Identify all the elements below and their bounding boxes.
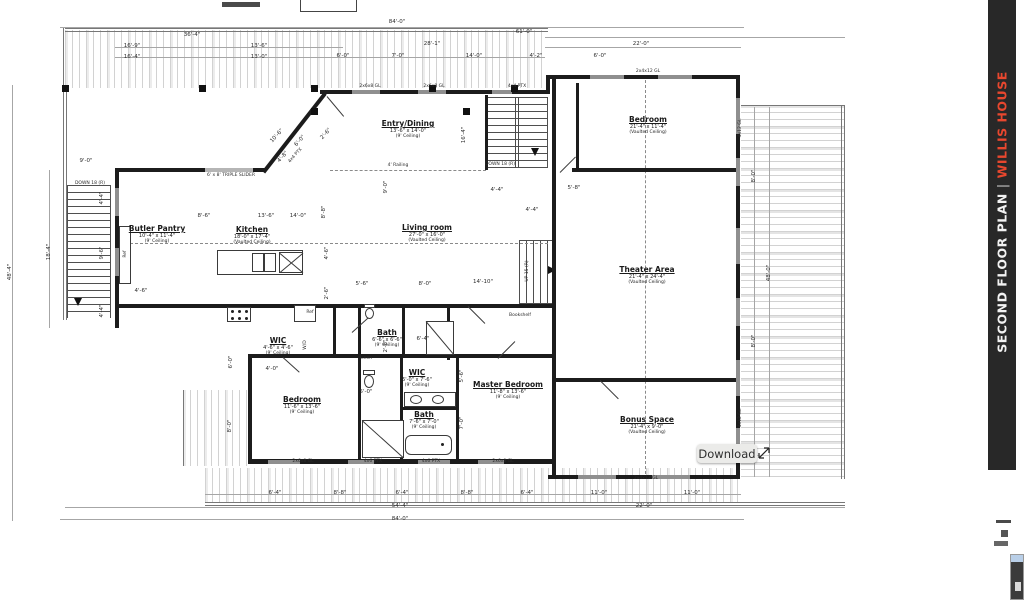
dimension-label: 8'-0" [751, 334, 757, 347]
dimension-line [65, 507, 845, 508]
window [352, 90, 380, 94]
toilet [364, 375, 374, 388]
floorplan-canvas: Entry/Dining13'-6" x 14'-0"(9' Ceiling)B… [0, 0, 988, 600]
dimension-label: 14'-0" [466, 53, 483, 59]
dimension-label: 13'-6" [251, 43, 268, 49]
dimension-label: 5'-6" [355, 281, 368, 287]
door [468, 306, 486, 324]
dimension-label: 9'-6" [99, 246, 105, 259]
dimension-label: 4x12 GL [738, 119, 744, 138]
room-label: Master Bedroom11'-8" x 13'-6"(9' Ceiling… [473, 381, 543, 401]
deck-rail [841, 105, 842, 479]
vanity-sink [410, 395, 422, 404]
railing-line [330, 170, 486, 171]
dimension-label: 8'-8" [460, 490, 473, 496]
deck-rail [183, 390, 184, 466]
window [736, 228, 740, 264]
dimension-label: 9'-0" [79, 158, 92, 164]
dimension-label: 2x6x8 GL [292, 459, 313, 465]
wall [250, 354, 556, 358]
window [492, 90, 512, 94]
wall [572, 168, 736, 172]
title-block-mark [1001, 530, 1008, 537]
dimension-label: UP 15 (R) [525, 260, 531, 281]
door [283, 357, 300, 372]
dimension-label: 5'-0" [359, 389, 372, 395]
window [736, 360, 740, 396]
dimension-label: 84'-0" [389, 19, 406, 25]
wall [552, 79, 556, 479]
deck-rail [63, 28, 64, 320]
dimension-label: Bookshelf [509, 313, 531, 319]
wall [485, 95, 488, 170]
dimension-label: 8'-0" [751, 169, 757, 182]
stair-stringer [515, 97, 516, 168]
dimension-label: 4'-4" [525, 207, 538, 213]
room-label: Living room27'-0" x 16'-0"(Vaulted Ceili… [402, 224, 452, 244]
burner [238, 317, 241, 320]
dimension-label: 14'-10" [473, 279, 493, 285]
dimension-label: 18'-4" [46, 244, 52, 261]
door [600, 380, 619, 399]
post [311, 108, 318, 115]
dimension-label: 14'-0" [290, 213, 307, 219]
dimension-label: 36'-4" [184, 32, 201, 38]
sheet-name: SECOND FLOOR PLAN [995, 193, 1010, 353]
dimension-label: 6'-4" [395, 490, 408, 496]
wall [333, 308, 336, 358]
dimension-label: 7'-0" [459, 416, 465, 429]
door [327, 96, 344, 117]
window [736, 298, 740, 326]
dimension-label: 4'-4" [99, 304, 105, 317]
dimension-line [545, 47, 741, 48]
title-block-mark [994, 541, 1008, 546]
deck-rail [205, 502, 845, 503]
wall [556, 378, 740, 382]
dimension-label: 2x6x8 GL [359, 84, 380, 90]
window [590, 75, 624, 79]
dimension-label: 5'-8" [567, 185, 580, 191]
dimension-line [115, 47, 343, 48]
kitchen-sink [252, 253, 264, 272]
window [578, 475, 616, 479]
thumbnail-toolbar [1011, 555, 1024, 562]
dimension-label: Ref [123, 250, 129, 257]
post [463, 108, 470, 115]
dimension-label: 2x4x12 GL [636, 69, 660, 75]
room-label: Kitchen18'-0" x 17'-4"(Vaulted Ceiling) [233, 226, 270, 246]
wall [546, 75, 740, 79]
room-label: Butler Pantry10'-4" x 11'-4"(9' Ceiling) [129, 225, 185, 245]
bathtub-drain [441, 443, 444, 446]
dimension-label: DOWN 18 (R) [75, 181, 105, 187]
deck-rail [205, 505, 845, 506]
burner [231, 317, 234, 320]
deck-rail [844, 105, 845, 479]
dimension-label: 2x6x8 GL [492, 459, 513, 465]
thumbnail-body [1011, 562, 1024, 600]
post [62, 85, 69, 92]
dimension-label: 8'-6" [197, 213, 210, 219]
dimension-label: 16'-4" [461, 127, 467, 144]
dimension-label: 2x4x12 GL [634, 476, 658, 482]
dimension-label: DOWN 18 (R) [485, 162, 515, 168]
download-tooltip[interactable]: Download [697, 444, 757, 463]
dimension-label: 22'-0" [636, 503, 653, 509]
dimension-label: 4'-2" [529, 53, 542, 59]
dimension-label: 4'-4" [490, 187, 503, 193]
dimension-label: 6'-0" [228, 355, 234, 368]
burner [245, 310, 248, 313]
dimension-label: 6'-0" [593, 53, 606, 59]
roof-outline [300, 0, 357, 12]
window [115, 188, 119, 216]
window [658, 75, 692, 79]
resize-cursor-icon [756, 445, 772, 465]
kitchen-sink [264, 253, 276, 272]
bathtub [405, 435, 452, 455]
dimension-label: 2x6x8 GL [423, 84, 444, 90]
dimension-label: 8'-0" [418, 281, 431, 287]
room-label: WIC5'-0" x 7'-6"(9' Ceiling) [402, 369, 432, 389]
dimension-label: 4x6 PTX [422, 459, 440, 465]
dimension-label: Linen [360, 356, 372, 362]
dimension-label: 84'-0" [392, 516, 409, 522]
dimension-label: 13'-6" [258, 213, 275, 219]
burner [245, 317, 248, 320]
deck-east [741, 105, 844, 478]
dimension-label: 4x12 GL [738, 409, 744, 428]
dimension-label: 48'-4" [7, 264, 13, 281]
deck-rail [741, 105, 844, 106]
dimension-line [545, 37, 845, 38]
dimension-label: 11'-0" [684, 490, 701, 496]
app-window: Entry/Dining13'-6" x 14'-0"(9' Ceiling)B… [0, 0, 1024, 600]
room-label: Bedroom11'-6" x 13'-6"(9' Ceiling) [283, 396, 321, 416]
dimension-label: 4x4 PTX [288, 147, 305, 165]
post [311, 85, 318, 92]
wall [358, 308, 361, 358]
room-label: Bath7'-6" x 7'-0"(9' Ceiling) [409, 411, 439, 431]
window [736, 158, 740, 186]
burner [238, 310, 241, 313]
dimension-label: 6'-4" [268, 490, 281, 496]
dimension-label: 6'-0" [293, 134, 306, 148]
deck-south [205, 468, 741, 502]
dimension-label: 6'-4" [416, 336, 429, 342]
dimension-label: 54'-4" [392, 503, 409, 509]
dimension-label: 6'-0" [336, 53, 349, 59]
roof-outline [222, 2, 260, 7]
dimension-line [60, 27, 744, 28]
dimension-label: 4'-6" [134, 288, 147, 294]
room-label: Bedroom21'-4" x 11'-4"(Vaulted Ceiling) [629, 116, 667, 136]
dimension-label: 11'-0" [591, 490, 608, 496]
dimension-line [12, 85, 13, 521]
dimension-label: 61'-0" [516, 29, 533, 35]
dimension-line [769, 107, 770, 477]
room-label: WIC4'-6" x 4'-6"(9' Ceiling) [263, 337, 293, 357]
dimension-label: 13'-0" [251, 54, 268, 60]
stair-direction-arrow [531, 148, 539, 156]
dimension-label: 9'-0" [383, 180, 389, 193]
wall [248, 354, 252, 464]
dimension-label: Ref [306, 310, 313, 316]
title-divider: | [995, 183, 1010, 188]
wall [546, 75, 550, 94]
preview-thumbnail[interactable] [1010, 554, 1024, 600]
dimension-label: 28'-1" [424, 41, 441, 47]
stair-stringer [518, 97, 519, 168]
dimension-label: 7'-0" [391, 53, 404, 59]
dimension-label: 8'-0" [227, 419, 233, 432]
project-name: WILLIS HOUSE [995, 71, 1010, 178]
room-label: Entry/Dining13'-6" x 14'-0"(9' Ceiling) [382, 120, 435, 140]
dimension-label: 4'-0" [265, 366, 278, 372]
burner [231, 310, 234, 313]
dimension-label: 5'-6" [459, 369, 465, 382]
dimension-label: 16'-9" [124, 43, 141, 49]
title-block-mark [996, 520, 1011, 523]
dimension-label: 6'-4" [520, 490, 533, 496]
sheet-title: SECOND FLOOR PLAN|WILLIS HOUSE [995, 71, 1010, 352]
triple-slider-door [205, 168, 253, 172]
dimension-label: 6' x 8' TRIPLE SLIDER [207, 173, 255, 179]
dimension-label: 4' Railing [388, 163, 409, 169]
room-label: Bonus Space21'-4" x 9'-0"(Vaulted Ceilin… [620, 416, 674, 436]
dimension-label: W/D [303, 340, 309, 349]
wall [358, 354, 361, 461]
dimension-label: 48'-0" [766, 265, 772, 282]
thumbnail-glyph [1015, 582, 1021, 591]
vanity-sink [432, 395, 444, 404]
deck-rail [65, 31, 548, 32]
wall [576, 83, 579, 168]
dimension-line [754, 107, 755, 477]
dimension-label: 2'-6" [319, 127, 332, 141]
dimension-label: 8'-8" [321, 205, 327, 218]
dimension-label: 10'-6" [269, 128, 285, 144]
deck-stair-landing [183, 390, 247, 466]
dimension-label: 4x6 PTX [364, 459, 382, 465]
wall [402, 308, 405, 358]
dimension-label: 4'-6" [324, 246, 330, 259]
dimension-label: 8'-8" [333, 490, 346, 496]
stair-direction-arrow [74, 298, 82, 306]
dimension-label: 22'-0" [633, 41, 650, 47]
post [199, 85, 206, 92]
dimension-label: 2'-8" [383, 339, 389, 352]
dimension-label: 4x4 PTX [508, 84, 526, 90]
dimension-label: 2'-6" [324, 286, 330, 299]
dimension-label: 16'-4" [124, 54, 141, 60]
dimension-label: 4'-4" [99, 191, 105, 204]
room-label: Theater Area21'-4" x 24'-4"(Vaulted Ceil… [619, 266, 674, 286]
deck-rail [65, 28, 548, 29]
